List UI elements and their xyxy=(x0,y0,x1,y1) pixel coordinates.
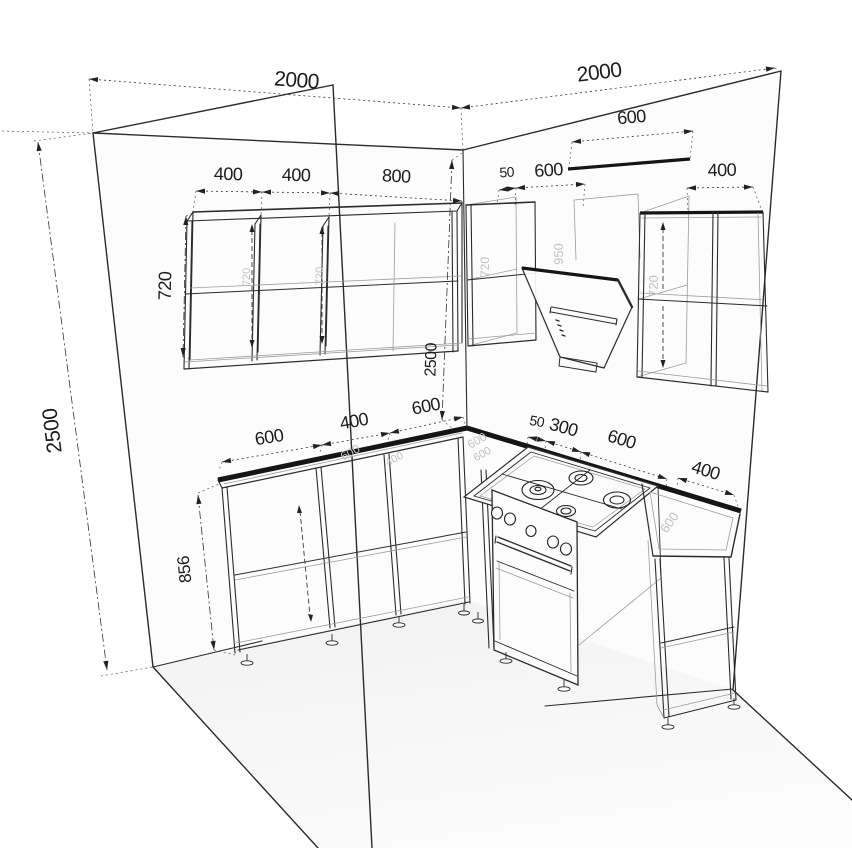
dim-800-upper-label: 800 xyxy=(382,165,412,186)
label-720-corner-cab: 720 xyxy=(478,257,492,277)
kitchen-drawing-page: 2000200060040040080050600400720250025008… xyxy=(0,0,852,848)
label-720-right-cab: 720 xyxy=(646,275,661,297)
dimension-arrow xyxy=(89,77,98,82)
dim-400-upper-right-label: 400 xyxy=(707,160,736,181)
dim-400-upper-1-label: 400 xyxy=(214,164,243,185)
dim-2500-corner-height-label: 2500 xyxy=(422,342,440,377)
kitchen-wireframe-svg: 2000200060040040080050600400720250025008… xyxy=(0,0,852,848)
label-720-upper-1: 720 xyxy=(241,268,253,286)
dim-50-upper-label: 50 xyxy=(499,163,515,180)
dimension-arrow xyxy=(766,67,775,72)
dim-720-upper-height-label: 720 xyxy=(155,271,176,300)
dim-400-upper-2-label: 400 xyxy=(282,165,311,186)
dim-2500-wall-height-label: 2500 xyxy=(38,407,66,454)
dim-2000-left-label: 2000 xyxy=(273,67,319,93)
dimension-arrow xyxy=(452,105,461,110)
label-720-upper-2: 720 xyxy=(314,267,326,285)
dimension-arrow xyxy=(103,661,108,670)
dim-856-base-height-label: 856 xyxy=(174,555,196,584)
label-950-hood: 950 xyxy=(551,243,566,265)
dim-2000-right-label: 2000 xyxy=(576,58,623,86)
dim-600-upper-right-label: 600 xyxy=(534,159,564,181)
dimension-arrow xyxy=(37,142,42,151)
dimension-arrow xyxy=(461,104,470,109)
dim-600-hood-label: 600 xyxy=(616,106,647,128)
dim-2500-wall-height-line xyxy=(38,142,107,670)
